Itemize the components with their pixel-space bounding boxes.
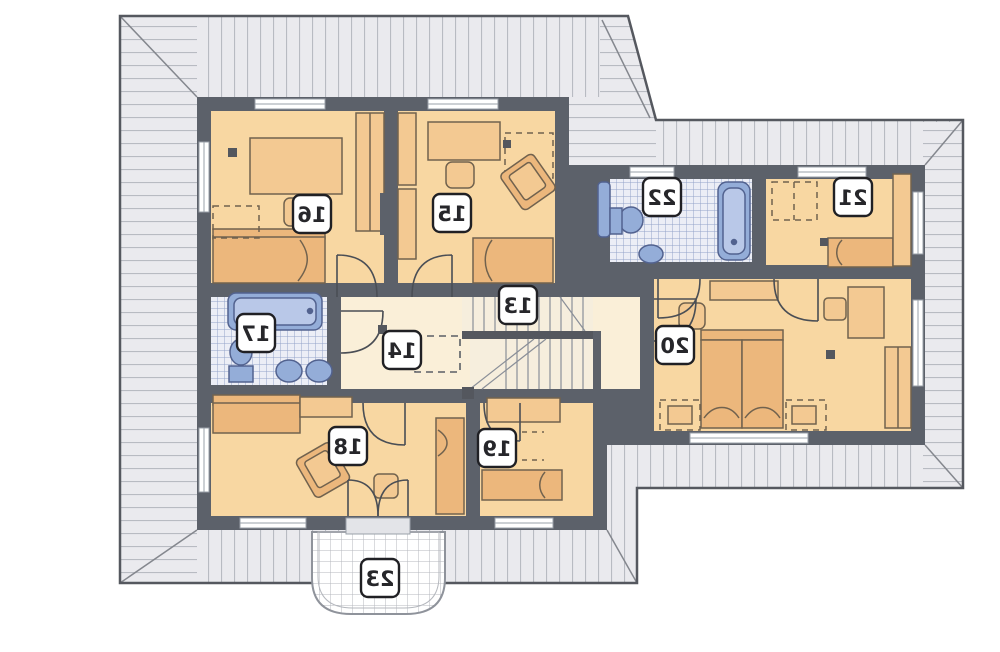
sofa — [213, 403, 300, 433]
stairs-landing-edge — [462, 331, 600, 339]
roof-plane-wing-right — [923, 122, 963, 488]
floor-plan-canvas: 13 14 15 16 17 18 19 20 — [0, 0, 1000, 652]
bed — [482, 470, 562, 500]
vent — [820, 238, 828, 246]
radiator — [598, 182, 610, 237]
roof-plane-bottom-right-patch — [607, 488, 637, 530]
wardrobe — [487, 398, 560, 422]
sink-1 — [276, 360, 302, 382]
svg-text:13: 13 — [503, 294, 532, 318]
desk — [428, 122, 500, 160]
floor-plan: 13 14 15 16 17 18 19 20 — [0, 0, 1000, 652]
svg-text:16: 16 — [297, 203, 326, 227]
bathtub-drain — [308, 309, 313, 314]
chimney-block — [380, 193, 400, 235]
stairs-side-wall — [593, 331, 601, 389]
roof-plane-wing-bottom — [607, 445, 963, 488]
vent — [826, 350, 835, 359]
room-label-19: 19 — [478, 429, 516, 467]
roof-plane-left — [120, 16, 197, 583]
roof-plane-wing-top — [656, 120, 963, 165]
svg-text:14: 14 — [387, 339, 416, 363]
desk — [848, 287, 884, 338]
balcony-threshold — [346, 518, 410, 534]
room-label-14: 14 — [383, 331, 421, 369]
wardrobe — [893, 174, 911, 266]
vent — [503, 140, 511, 148]
room-label-18: 18 — [329, 427, 367, 465]
room-label-22: 22 — [643, 178, 681, 216]
sink — [639, 245, 663, 263]
sink-2 — [306, 360, 332, 382]
chair — [446, 162, 474, 188]
svg-text:18: 18 — [333, 435, 362, 459]
side-table — [374, 474, 398, 498]
room-label-17: 17 — [237, 314, 275, 352]
toilet-tank — [229, 366, 253, 382]
desk — [250, 138, 342, 194]
svg-text:23: 23 — [365, 567, 394, 591]
bed-headboard — [701, 330, 783, 340]
svg-text:17: 17 — [241, 322, 270, 346]
wardrobe-top — [710, 281, 778, 300]
room-label-20: 20 — [656, 326, 694, 364]
stair-post — [462, 387, 474, 399]
room-label-13: 13 — [499, 286, 537, 324]
toilet-tank — [610, 208, 622, 234]
room-label-16: 16 — [293, 195, 331, 233]
room-label-21: 21 — [834, 178, 872, 216]
nightstand-right — [792, 406, 816, 424]
bed — [213, 237, 325, 283]
nightstand-left — [668, 406, 692, 424]
chair — [824, 298, 846, 320]
wardrobe-upper — [398, 113, 416, 185]
svg-text:22: 22 — [647, 186, 676, 210]
stairs-lower-flight — [470, 339, 593, 389]
room-label-15: 15 — [433, 194, 471, 232]
svg-text:19: 19 — [482, 437, 511, 461]
wardrobe-lower — [398, 189, 416, 259]
bed — [828, 238, 893, 267]
room-label-23: 23 — [361, 559, 399, 597]
svg-text:15: 15 — [437, 202, 466, 226]
svg-text:21: 21 — [838, 186, 867, 210]
vent — [228, 148, 237, 157]
svg-text:20: 20 — [660, 334, 689, 358]
shelf — [300, 397, 352, 417]
bathtub-drain — [732, 240, 737, 245]
